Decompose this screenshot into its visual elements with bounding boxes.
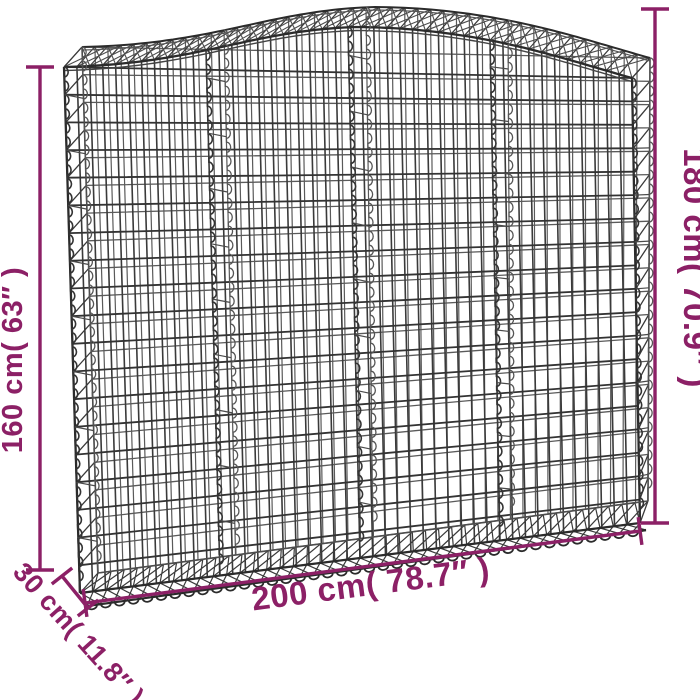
height-right-label: 180 cm( 70.9″ ) [677,148,700,388]
gabion-basket-illustration: 160 cm( 63″ ) 180 cm( 70.9″ ) 200 cm( 78… [0,0,700,700]
height-left-label: 160 cm( 63″ ) [0,267,29,453]
height-left-measurement: 160 cm( 63″ ) [0,67,54,570]
basket-wireframe [64,7,654,610]
height-left-dimension-line [26,67,54,570]
product-dimension-diagram: 160 cm( 63″ ) 180 cm( 70.9″ ) 200 cm( 78… [0,0,700,700]
